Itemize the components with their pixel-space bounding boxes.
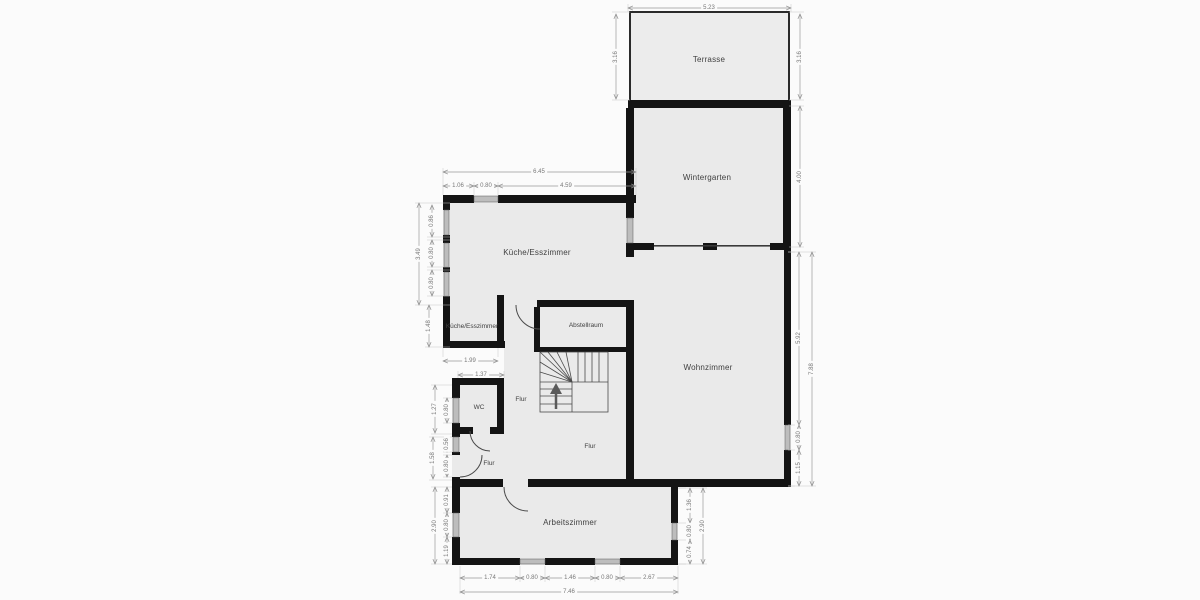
dimension-label: 0.80 — [444, 517, 450, 533]
dimension-label: 1.46 — [562, 575, 578, 581]
dimension-label: 1.58 — [430, 450, 436, 466]
dimension-label: 3.49 — [416, 246, 422, 262]
dimension-label: 0.80 — [429, 245, 435, 261]
dimension-label: 0.74 — [687, 544, 693, 560]
dimension-label: 3.16 — [613, 49, 619, 65]
dimension-label: 1.19 — [444, 543, 450, 559]
dimension-label: 0.80 — [524, 575, 540, 581]
dimension-label: 1.48 — [426, 318, 432, 334]
dimension-label: 0.80 — [687, 523, 693, 539]
room-label-flur-3: Flur — [483, 461, 494, 468]
dimension-label: 7.46 — [561, 589, 577, 595]
room-label-abstellraum: Abstellraum — [569, 323, 603, 330]
floorplan-page: Terrasse Wintergarten Küche/Esszimmer Kü… — [0, 0, 1200, 600]
dimension-label: 0.91 — [444, 492, 450, 508]
dimension-label: 2.90 — [432, 518, 438, 534]
dimension-label: 1.27 — [432, 401, 438, 417]
room-label-wc: WC — [474, 405, 485, 412]
dimension-label: 3.16 — [797, 49, 803, 65]
dimension-label: 2.67 — [641, 575, 657, 581]
dimension-label: 7.88 — [809, 361, 815, 377]
dimension-label: 4.00 — [797, 169, 803, 185]
dimension-label: 0.80 — [478, 183, 494, 189]
dimension-label: 1.99 — [462, 358, 478, 364]
floorplan-canvas — [0, 0, 1200, 600]
dimension-label: 2.90 — [700, 518, 706, 534]
room-label-terrasse: Terrasse — [693, 56, 725, 64]
dimension-label: 0.80 — [429, 275, 435, 291]
room-label-kueche-2: Küche/Esszimmer — [446, 324, 498, 331]
dimension-label: 1.15 — [796, 460, 802, 476]
dimension-label: 0.80 — [444, 458, 450, 474]
dimension-label: 1.36 — [687, 497, 693, 513]
room-floors — [443, 100, 791, 565]
dimension-label: 1.37 — [473, 372, 489, 378]
dimension-label: 4.59 — [558, 183, 574, 189]
dimension-label: 6.45 — [531, 169, 547, 175]
dimension-label: 0.80 — [796, 429, 802, 445]
room-label-arbeitszimmer: Arbeitszimmer — [543, 519, 597, 527]
room-label-kueche: Küche/Esszimmer — [503, 249, 570, 257]
dimension-label: 5.92 — [796, 330, 802, 346]
room-label-wintergarten: Wintergarten — [683, 174, 731, 182]
dimension-label: 1.74 — [482, 575, 498, 581]
room-label-wohnzimmer: Wohnzimmer — [684, 364, 733, 372]
dimension-label: 0.86 — [429, 213, 435, 229]
dimension-label: 0.80 — [444, 402, 450, 418]
dimension-label: 1.06 — [450, 183, 466, 189]
room-label-flur-2: Flur — [584, 444, 595, 451]
dimension-label: 5.23 — [701, 5, 717, 11]
dimension-label: 0.56 — [444, 436, 450, 452]
room-label-flur-1: Flur — [515, 397, 526, 404]
dimension-label: 0.80 — [599, 575, 615, 581]
